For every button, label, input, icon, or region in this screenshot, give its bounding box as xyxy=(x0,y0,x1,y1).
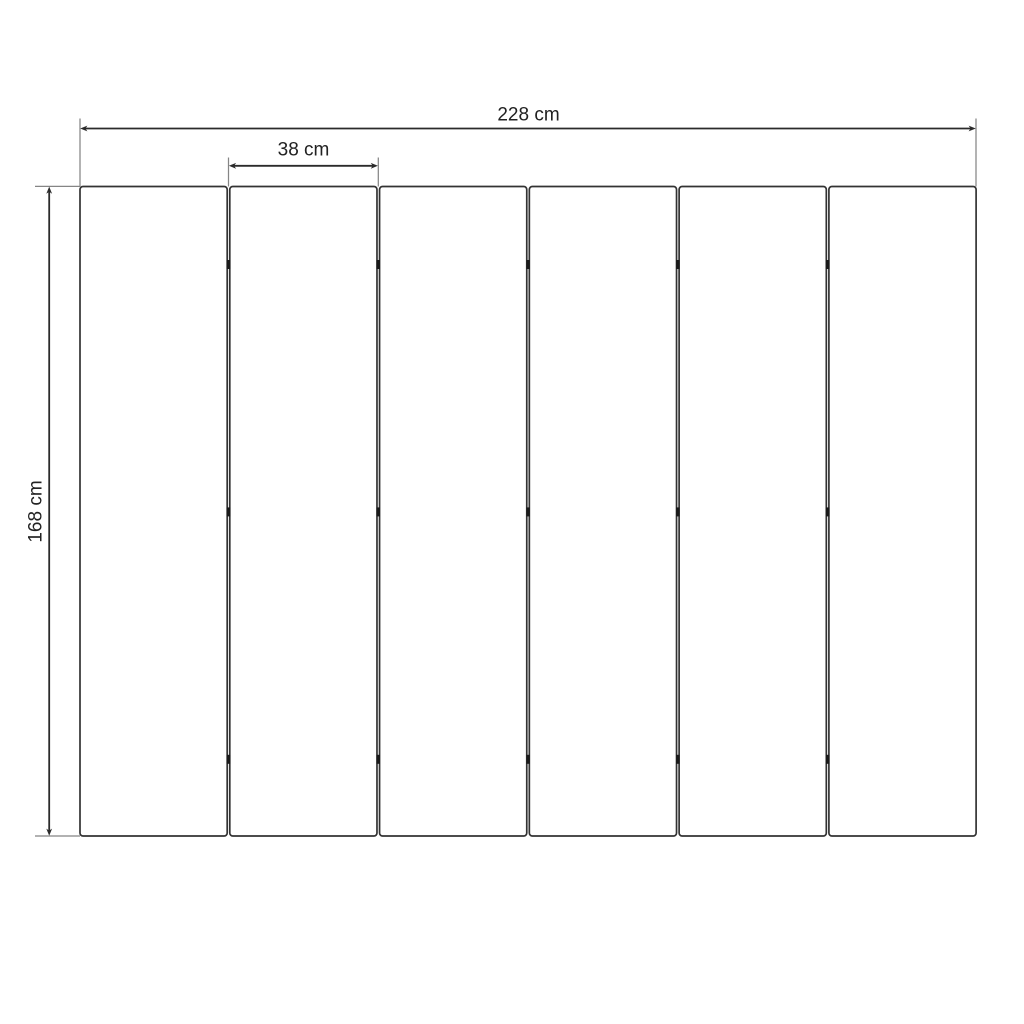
svg-text:38 cm: 38 cm xyxy=(278,140,330,161)
svg-text:168 cm: 168 cm xyxy=(26,480,47,542)
svg-text:228 cm: 228 cm xyxy=(497,105,559,126)
